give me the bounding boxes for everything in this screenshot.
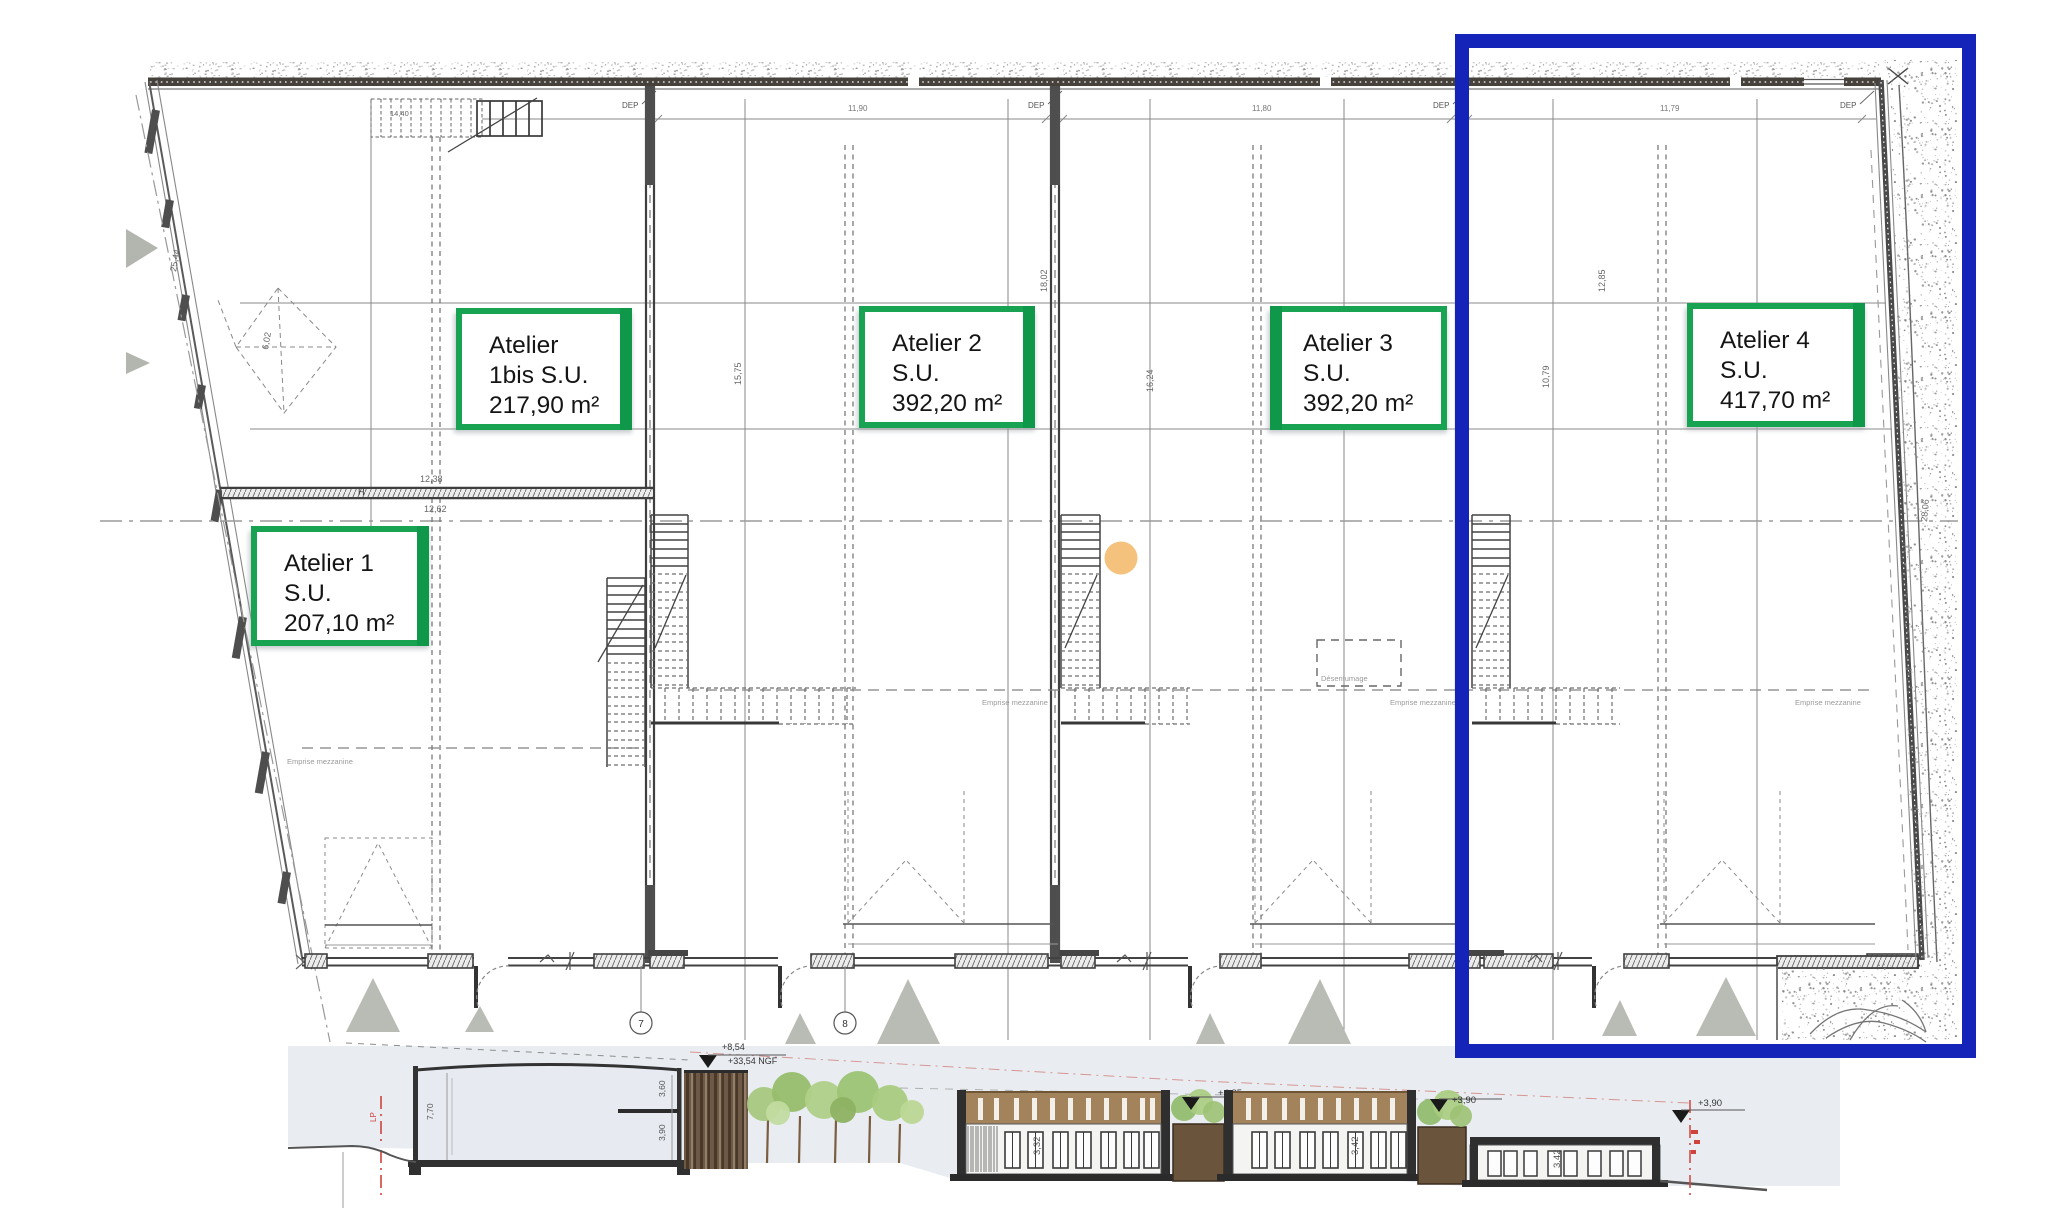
svg-text:1bis S.U.: 1bis S.U. <box>489 362 588 389</box>
svg-text:+8,54: +8,54 <box>722 1042 745 1052</box>
svg-text:392,20 m²: 392,20 m² <box>1303 390 1413 417</box>
svg-text:+3,90: +3,90 <box>1452 1095 1476 1106</box>
svg-text:3,60: 3,60 <box>657 1080 667 1097</box>
svg-text:14,40: 14,40 <box>390 109 409 118</box>
svg-text:10,79: 10,79 <box>1541 365 1551 388</box>
svg-text:7: 7 <box>638 1019 644 1030</box>
svg-text:3,42: 3,42 <box>1552 1150 1563 1169</box>
svg-text:Emprise mezzanine: Emprise mezzanine <box>1795 698 1861 707</box>
svg-text:3,42: 3,42 <box>1350 1137 1361 1156</box>
svg-text:Atelier 4: Atelier 4 <box>1720 327 1810 354</box>
svg-text:DEP: DEP <box>1028 101 1044 110</box>
svg-text:DEP: DEP <box>622 101 638 110</box>
svg-text:3,90: 3,90 <box>657 1124 667 1141</box>
svg-text:Atelier 2: Atelier 2 <box>892 330 982 357</box>
svg-text:Emprise mezzanine: Emprise mezzanine <box>982 698 1048 707</box>
svg-text:11,80: 11,80 <box>1252 104 1272 113</box>
svg-text:Atelier 1: Atelier 1 <box>284 550 374 577</box>
svg-text:7,70: 7,70 <box>425 1103 435 1120</box>
svg-text:16,24: 16,24 <box>1145 369 1155 392</box>
svg-text:12,38: 12,38 <box>420 474 443 484</box>
svg-text:392,20 m²: 392,20 m² <box>892 390 1002 417</box>
svg-text:DEP: DEP <box>1433 101 1449 110</box>
svg-text:207,10 m²: 207,10 m² <box>284 610 394 637</box>
svg-text:S.U.: S.U. <box>284 580 332 607</box>
svg-text:12,62: 12,62 <box>424 504 447 514</box>
svg-text:3,32: 3,32 <box>1032 1137 1043 1156</box>
svg-text:DEP: DEP <box>1840 101 1856 110</box>
svg-text:8: 8 <box>842 1019 848 1030</box>
svg-text:Atelier 3: Atelier 3 <box>1303 330 1393 357</box>
svg-text:12,85: 12,85 <box>1597 269 1607 292</box>
svg-text:Désenfumage: Désenfumage <box>1321 674 1368 683</box>
svg-text:217,90 m²: 217,90 m² <box>489 392 599 419</box>
svg-text:11,90: 11,90 <box>848 104 868 113</box>
svg-text:LP: LP <box>369 1112 378 1122</box>
svg-text:18,02: 18,02 <box>1039 269 1049 292</box>
svg-text:11,79: 11,79 <box>1660 104 1680 113</box>
svg-text:H: H <box>358 487 365 497</box>
svg-text:S.U.: S.U. <box>1720 357 1768 384</box>
svg-text:+3,90: +3,90 <box>1698 1098 1722 1109</box>
svg-text:Emprise mezzanine: Emprise mezzanine <box>1390 698 1456 707</box>
svg-text:S.U.: S.U. <box>892 360 940 387</box>
svg-text:417,70 m²: 417,70 m² <box>1720 387 1830 414</box>
svg-text:15,75: 15,75 <box>733 362 743 385</box>
svg-text:+33,54 NGF: +33,54 NGF <box>728 1056 778 1066</box>
svg-text:Atelier: Atelier <box>489 332 558 359</box>
svg-text:Emprise mezzanine: Emprise mezzanine <box>287 757 353 766</box>
svg-text:S.U.: S.U. <box>1303 360 1351 387</box>
